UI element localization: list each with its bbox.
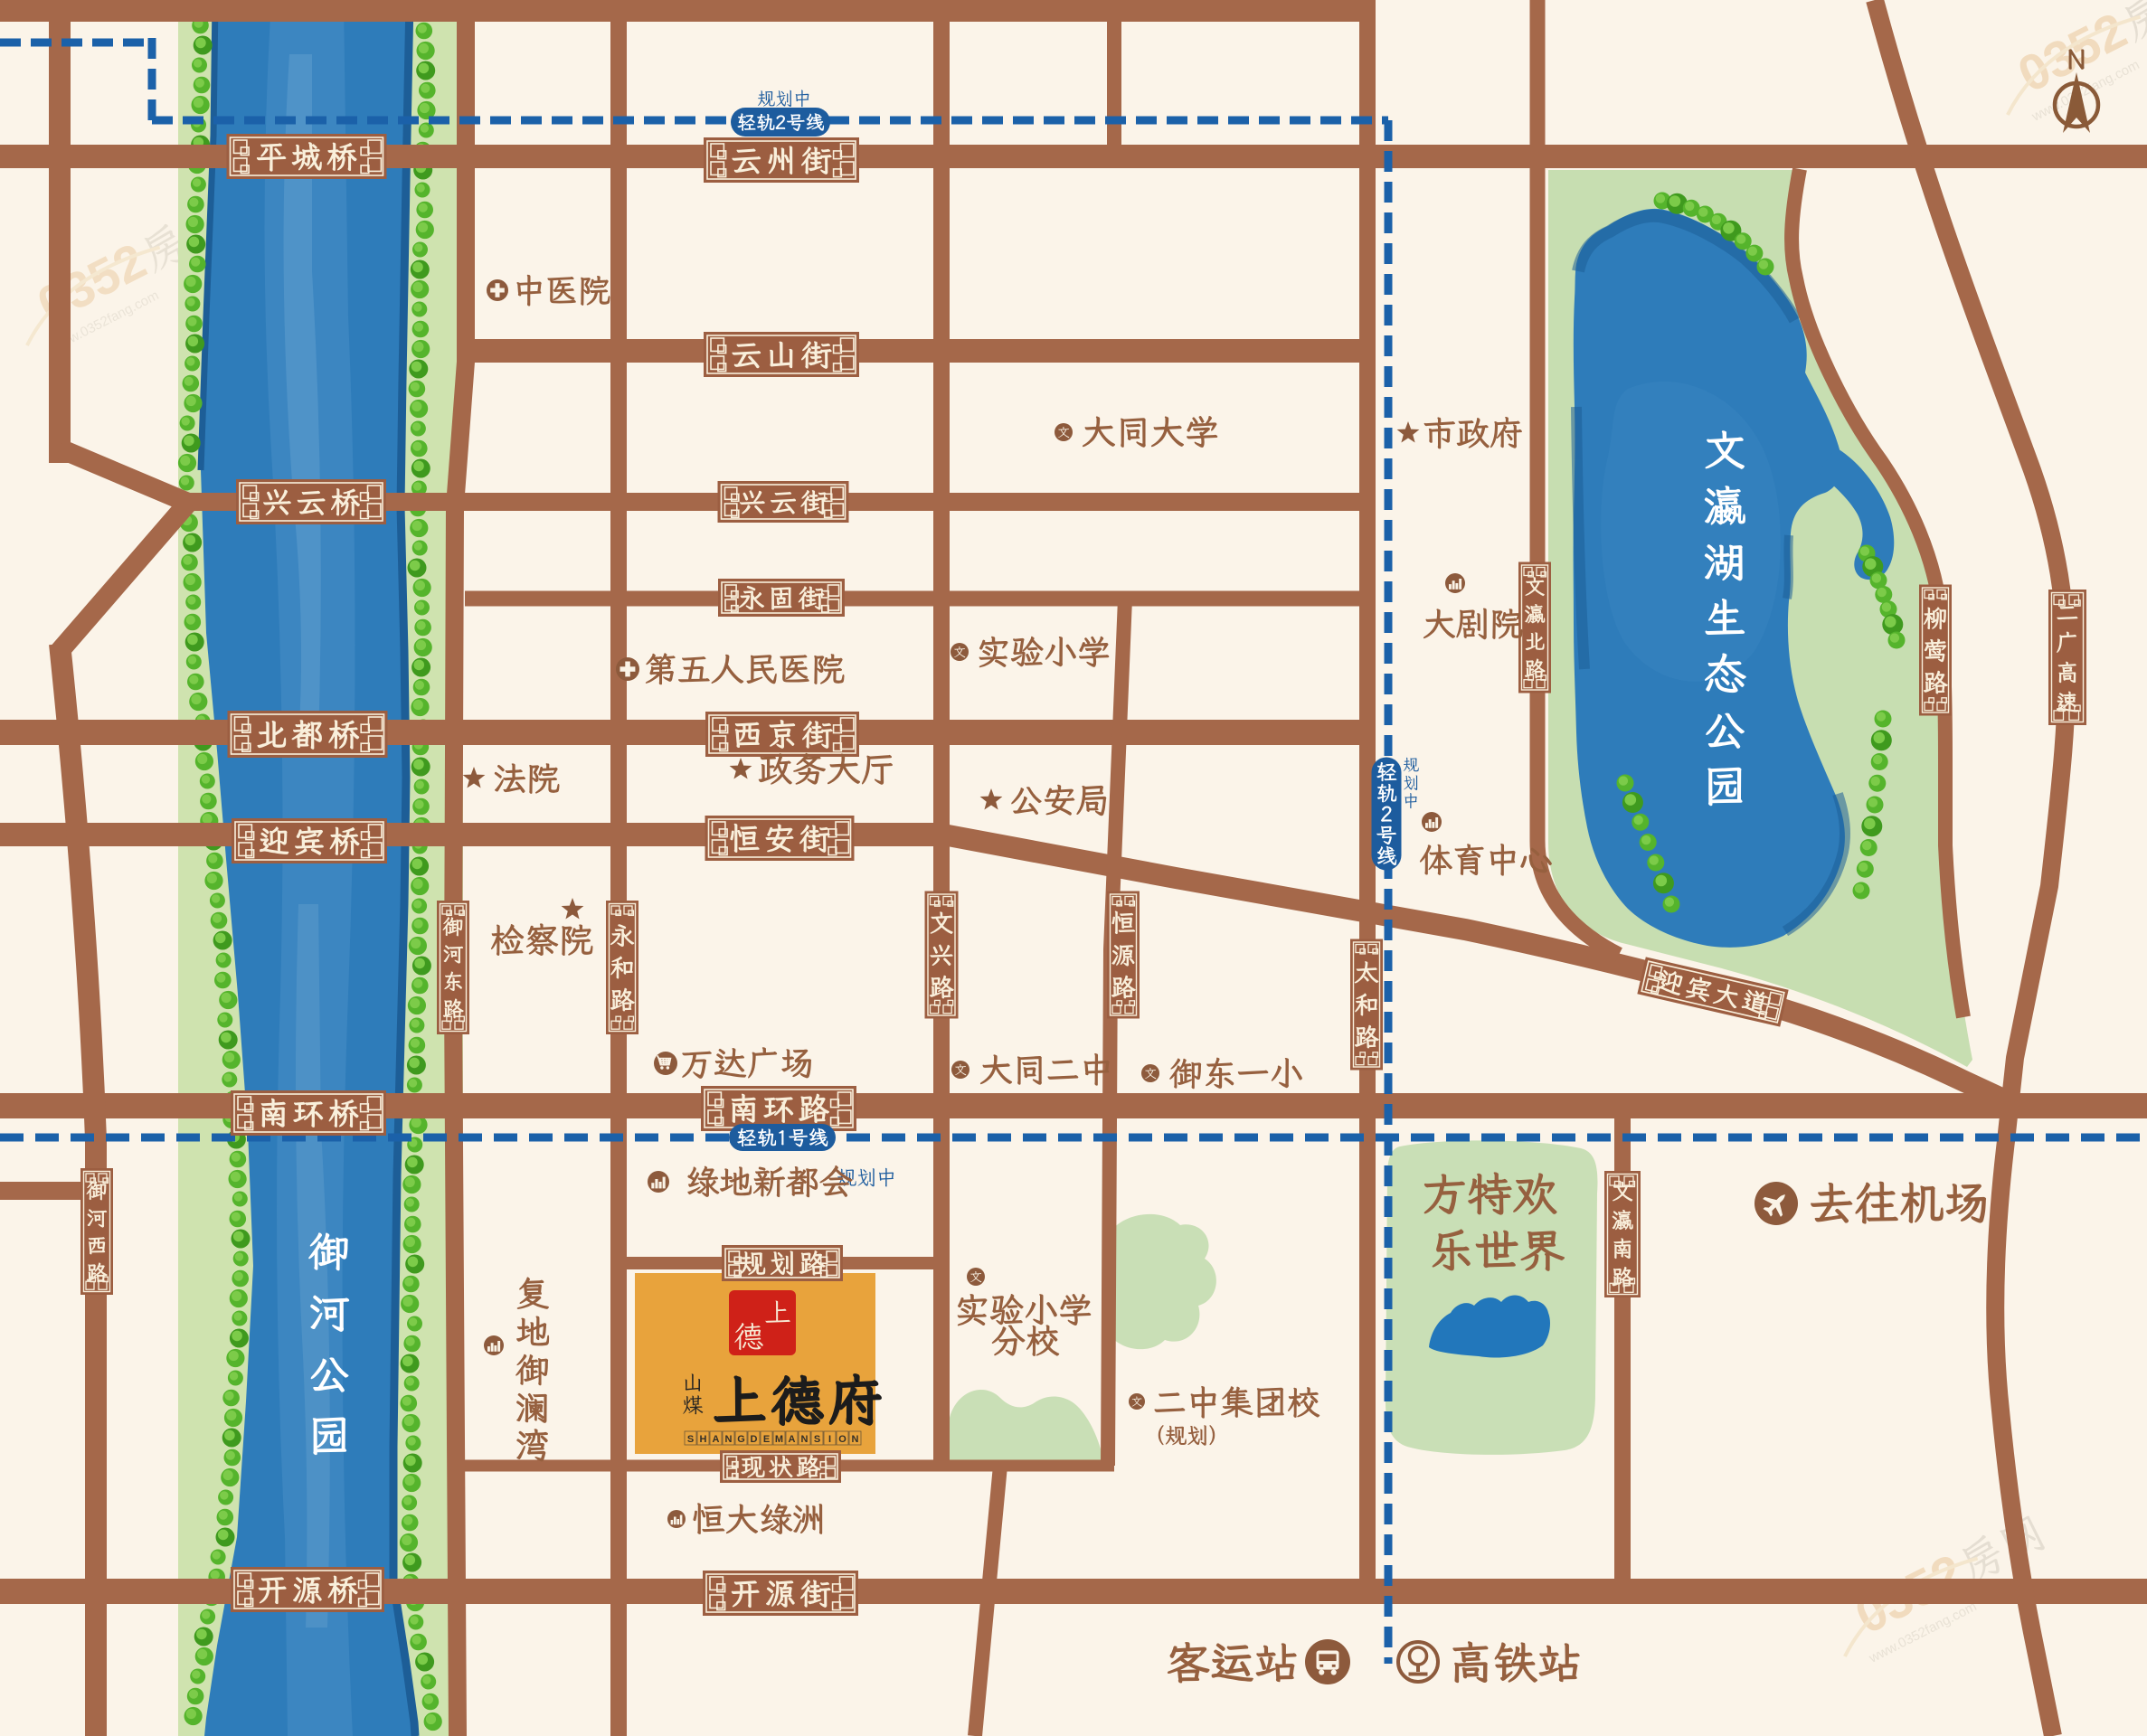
- svg-text:S: S: [814, 1434, 820, 1445]
- svg-text:G: G: [737, 1434, 745, 1445]
- svg-text:N: N: [725, 1434, 733, 1445]
- svg-text:A: A: [713, 1434, 720, 1445]
- svg-text:A: A: [789, 1434, 796, 1445]
- svg-text:H: H: [700, 1434, 707, 1445]
- svg-text:O: O: [838, 1434, 847, 1445]
- svg-text:E: E: [763, 1434, 770, 1445]
- svg-text:N: N: [801, 1434, 809, 1445]
- svg-text:S: S: [687, 1434, 694, 1445]
- svg-text:D: D: [751, 1434, 758, 1445]
- svg-text:I: I: [828, 1434, 831, 1445]
- svg-text:M: M: [775, 1434, 783, 1445]
- svg-text:N: N: [852, 1434, 859, 1445]
